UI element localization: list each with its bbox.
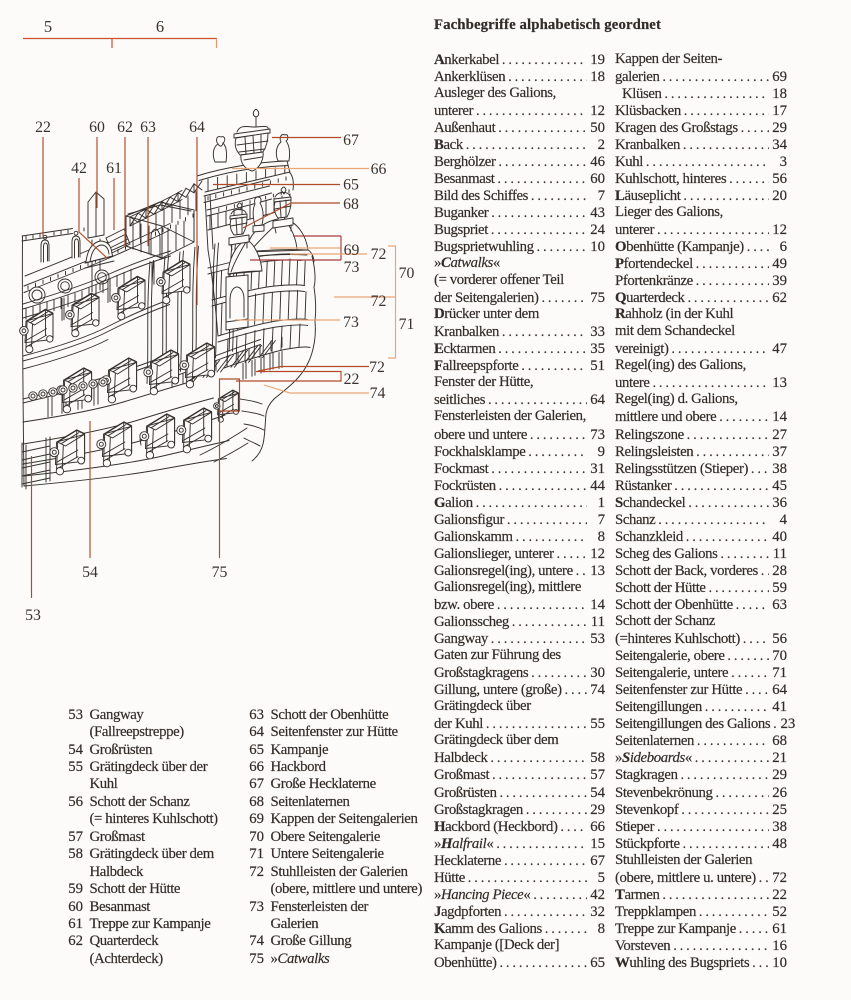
svg-text:64: 64: [189, 119, 205, 136]
svg-text:72: 72: [369, 359, 385, 376]
svg-text:74: 74: [370, 385, 386, 402]
svg-text:63: 63: [140, 119, 156, 136]
svg-text:60: 60: [89, 119, 105, 136]
svg-text:22: 22: [35, 119, 51, 136]
svg-text:72: 72: [371, 246, 387, 263]
svg-text:61: 61: [106, 160, 122, 177]
svg-text:22: 22: [344, 371, 360, 388]
svg-text:65: 65: [343, 177, 359, 194]
svg-text:68: 68: [343, 196, 359, 213]
svg-text:73: 73: [343, 314, 359, 331]
svg-text:53: 53: [25, 607, 41, 624]
svg-text:71: 71: [399, 316, 415, 333]
svg-text:42: 42: [71, 160, 87, 177]
svg-text:70: 70: [399, 265, 415, 282]
svg-text:62: 62: [117, 119, 133, 136]
svg-text:54: 54: [82, 564, 98, 581]
svg-text:67: 67: [343, 132, 359, 149]
svg-text:5: 5: [44, 17, 52, 36]
svg-text:6: 6: [156, 17, 164, 36]
svg-text:72: 72: [371, 293, 387, 310]
svg-text:69: 69: [344, 242, 360, 259]
svg-text:66: 66: [371, 161, 387, 178]
svg-text:73: 73: [344, 259, 360, 276]
svg-text:75: 75: [212, 564, 228, 581]
